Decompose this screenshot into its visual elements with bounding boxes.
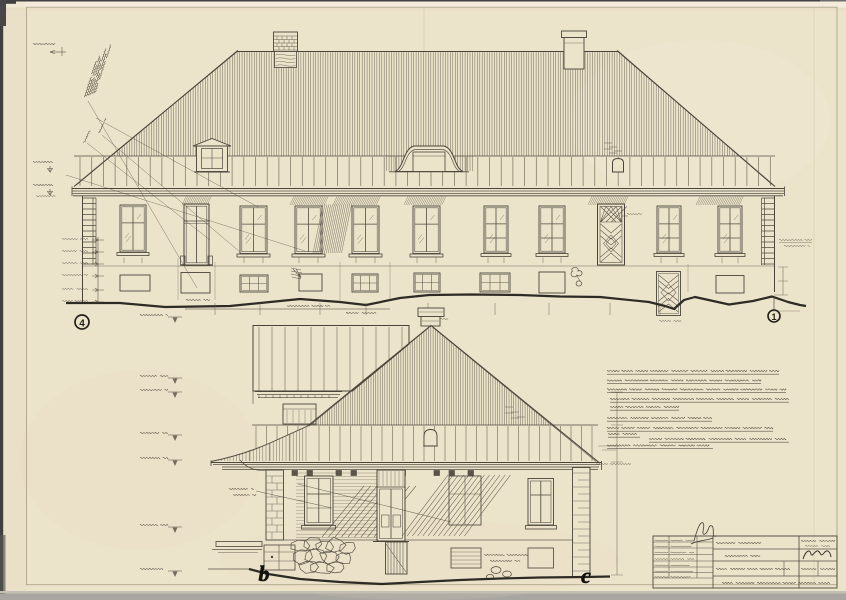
svg-text:b: b [259,561,270,586]
svg-text:c: c [581,563,591,588]
svg-text:1: 1 [771,312,776,322]
svg-text:4: 4 [79,319,85,330]
